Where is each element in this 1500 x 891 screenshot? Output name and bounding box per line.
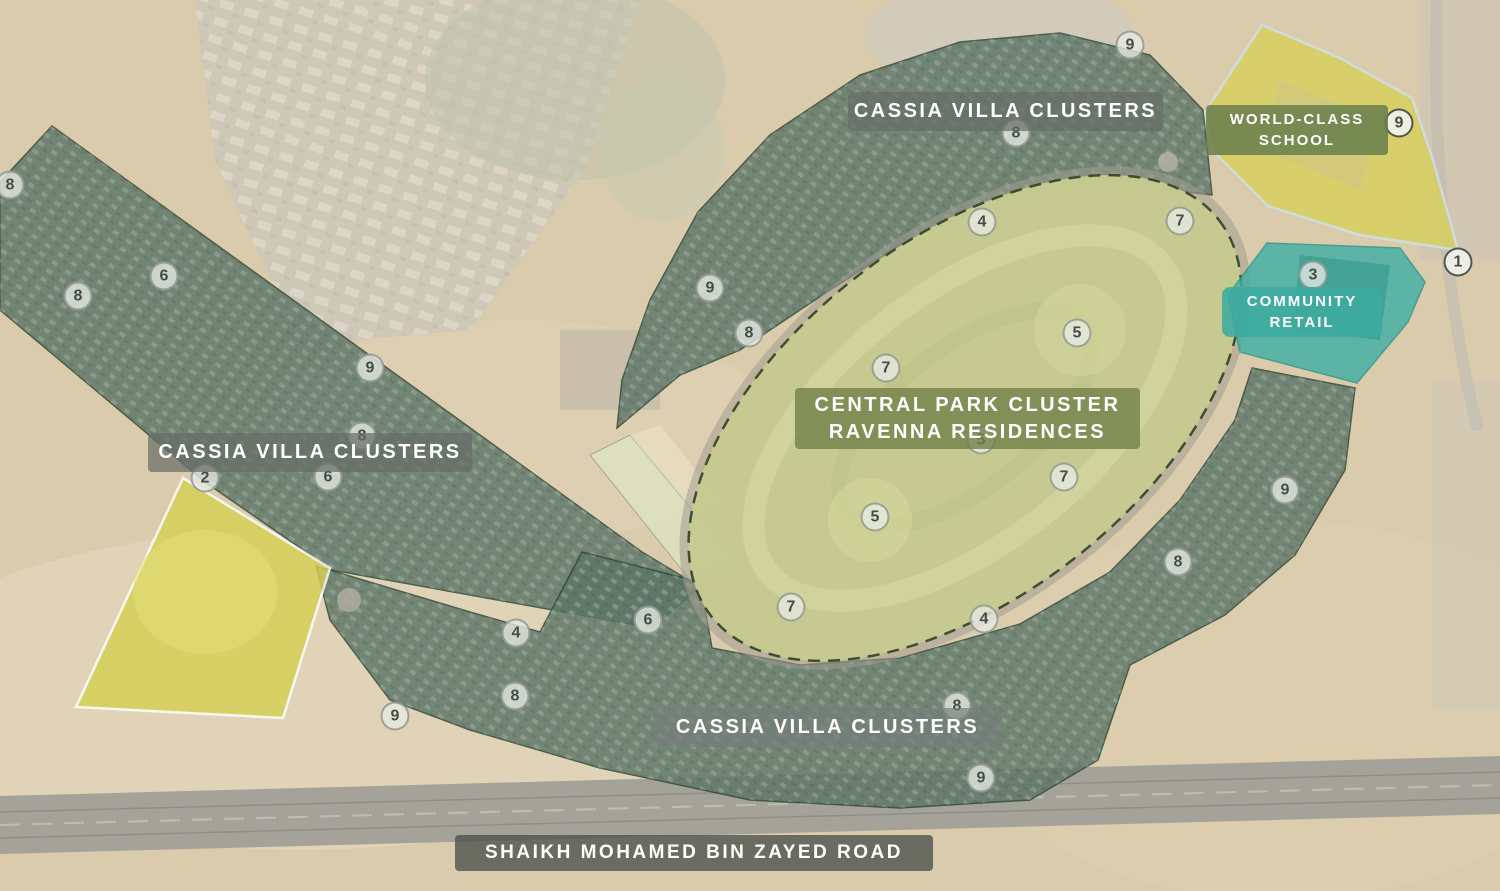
label-retail-line1: COMMUNITY [1222, 291, 1382, 312]
park-lawn [1034, 284, 1126, 376]
label-school-line1: WORLD-CLASS [1206, 109, 1388, 130]
label-shaikh-mohamed-bin-zayed-road: SHAIKH MOHAMED BIN ZAYED ROAD [455, 835, 933, 871]
label-central-park-line2: RAVENNA RESIDENCES [795, 419, 1140, 446]
urban-area-right [1432, 380, 1500, 710]
yellow-parcel-building [133, 530, 277, 654]
roundabout [337, 588, 361, 612]
label-world-class-school: WORLD-CLASS SCHOOL [1206, 105, 1388, 155]
label-cassia-villa-clusters-top: CASSIA VILLA CLUSTERS [848, 92, 1163, 131]
golf-course-area [600, 78, 724, 222]
roundabout [1158, 152, 1178, 172]
label-community-retail: COMMUNITY RETAIL [1222, 287, 1382, 337]
masterplan-map: 9988741369858798572695874648899 CASSIA V… [0, 0, 1500, 891]
label-school-line2: SCHOOL [1206, 130, 1388, 151]
label-cassia-villa-clusters-bottom: CASSIA VILLA CLUSTERS [653, 708, 1002, 747]
label-central-park-line1: CENTRAL PARK CLUSTER [795, 392, 1140, 419]
label-retail-line2: RETAIL [1222, 312, 1382, 333]
label-central-park-cluster: CENTRAL PARK CLUSTER RAVENNA RESIDENCES [795, 388, 1140, 449]
label-cassia-villa-clusters-left: CASSIA VILLA CLUSTERS [148, 433, 472, 472]
park-lawn [828, 478, 912, 562]
